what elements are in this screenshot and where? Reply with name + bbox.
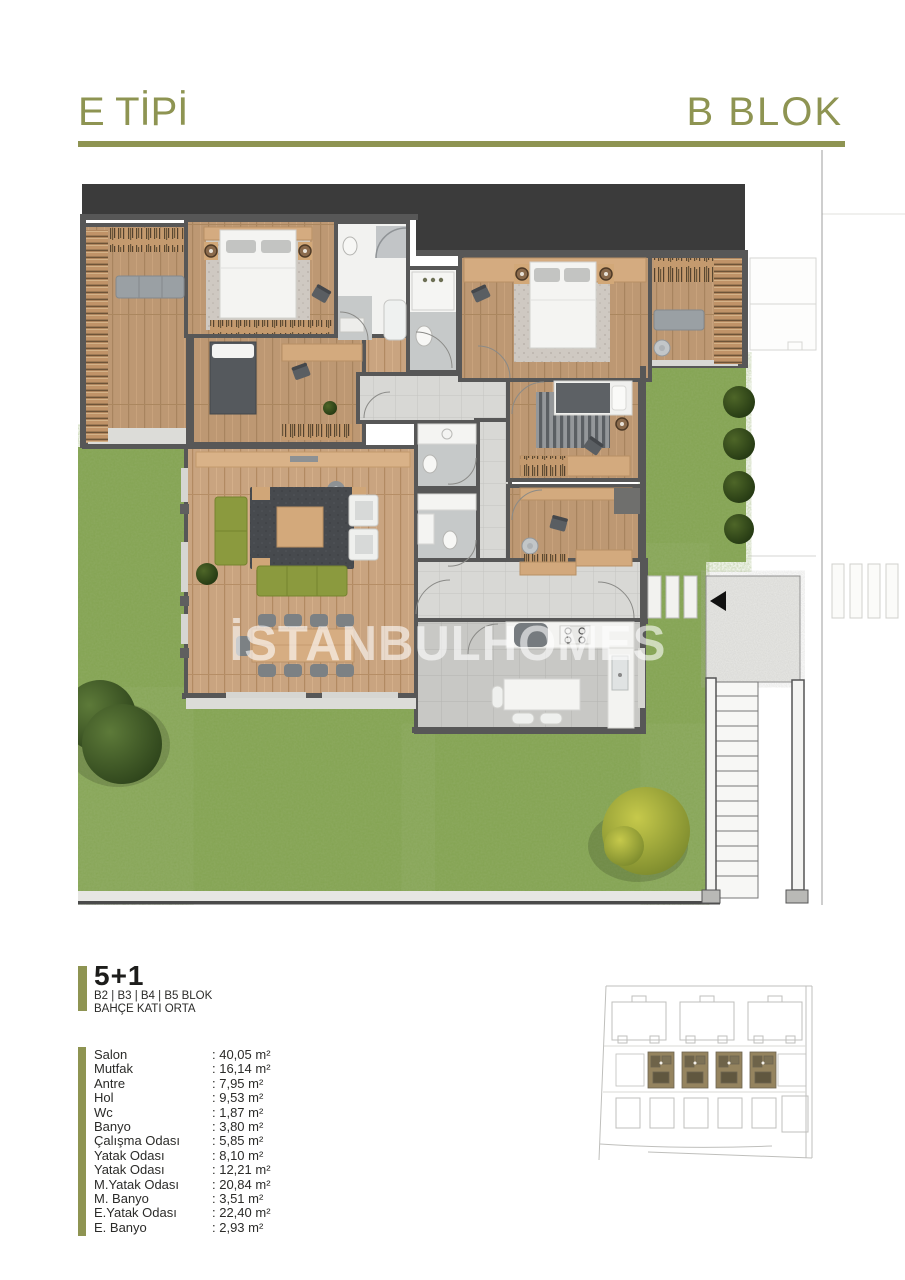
room-area: : 22,40 m² — [212, 1206, 334, 1220]
room-name: Hol — [94, 1091, 212, 1105]
room-name: Çalışma Odası — [94, 1134, 212, 1148]
room-name: Banyo — [94, 1120, 212, 1134]
room-name: Salon — [94, 1048, 212, 1062]
room-area: : 40,05 m² — [212, 1048, 334, 1062]
block-title: B BLOK — [686, 92, 843, 132]
room-row: Banyo : 3,80 m² — [94, 1120, 334, 1134]
bush-icon — [723, 386, 755, 418]
unit-sub-labels: B2 | B3 | B4 | B5 BLOK BAHÇE KATI ORTA — [94, 990, 212, 1015]
site-plan-row-top — [612, 996, 802, 1043]
room-row: Antre : 7,95 m² — [94, 1077, 334, 1091]
room-row: Mutfak : 16,14 m² — [94, 1062, 334, 1076]
header-rule — [78, 141, 845, 147]
unit-blocks-label: B2 | B3 | B4 | B5 BLOK — [94, 990, 212, 1003]
room-area: : 3,80 m² — [212, 1120, 334, 1134]
room-row: E.Yatak Odası : 22,40 m² — [94, 1206, 334, 1220]
wc-fixtures — [410, 272, 456, 370]
room-row: Salon : 40,05 m² — [94, 1048, 334, 1062]
room-area-list: Salon : 40,05 m² Mutfak : 16,14 m² Antre… — [94, 1048, 334, 1235]
room-row: M. Banyo : 3,51 m² — [94, 1192, 334, 1206]
sidewalk-edge — [78, 901, 720, 905]
site-plan-diagram — [599, 986, 812, 1160]
watermark: İSTANBULHOMES — [178, 616, 718, 672]
site-plan-row-bottom — [616, 1096, 808, 1132]
room-hall-corridor — [476, 420, 510, 572]
room-area: : 2,93 m² — [212, 1221, 334, 1235]
room-name: Wc — [94, 1106, 212, 1120]
room-area: : 1,87 m² — [212, 1106, 334, 1120]
room-area: : 16,14 m² — [212, 1062, 334, 1076]
room-row: Çalışma Odası : 5,85 m² — [94, 1134, 334, 1148]
room-area: : 20,84 m² — [212, 1178, 334, 1192]
unit-plan-label: 5+1 — [94, 960, 145, 992]
room-area: : 12,21 m² — [212, 1163, 334, 1177]
room-name: M.Yatak Odası — [94, 1178, 212, 1192]
room-row: Hol : 9,53 m² — [94, 1091, 334, 1105]
sidewalk — [78, 891, 720, 902]
room-area: : 8,10 m² — [212, 1149, 334, 1163]
room-name: Yatak Odası — [94, 1149, 212, 1163]
room-row: Yatak Odası : 12,21 m² — [94, 1163, 334, 1177]
site-plan-highlight-blocks — [616, 1052, 806, 1088]
brochure-page: E TİPİ B BLOK — [0, 0, 905, 1280]
room-mini-hall — [364, 336, 408, 376]
site-plan-roads — [600, 1144, 812, 1158]
room-area: : 9,53 m² — [212, 1091, 334, 1105]
room-area: : 7,95 m² — [212, 1077, 334, 1091]
plan-type-title: E TİPİ — [78, 92, 188, 132]
room-area: : 5,85 m² — [212, 1134, 334, 1148]
room-list-accent-bar — [78, 1047, 86, 1236]
room-area: : 3,51 m² — [212, 1192, 334, 1206]
room-name: Antre — [94, 1077, 212, 1091]
room-row: E. Banyo : 2,93 m² — [94, 1221, 334, 1235]
room-name: E. Banyo — [94, 1221, 212, 1235]
unit-floor-label: BAHÇE KATI ORTA — [94, 1003, 212, 1016]
room-name: Mutfak — [94, 1062, 212, 1076]
room-row: Yatak Odası : 8,10 m² — [94, 1149, 334, 1163]
room-row: Wc : 1,87 m² — [94, 1106, 334, 1120]
room-name: E.Yatak Odası — [94, 1206, 212, 1220]
room-name: Yatak Odası — [94, 1163, 212, 1177]
room-name: M. Banyo — [94, 1192, 212, 1206]
room-row: M.Yatak Odası : 20,84 m² — [94, 1178, 334, 1192]
unit-accent-bar — [78, 966, 87, 1011]
